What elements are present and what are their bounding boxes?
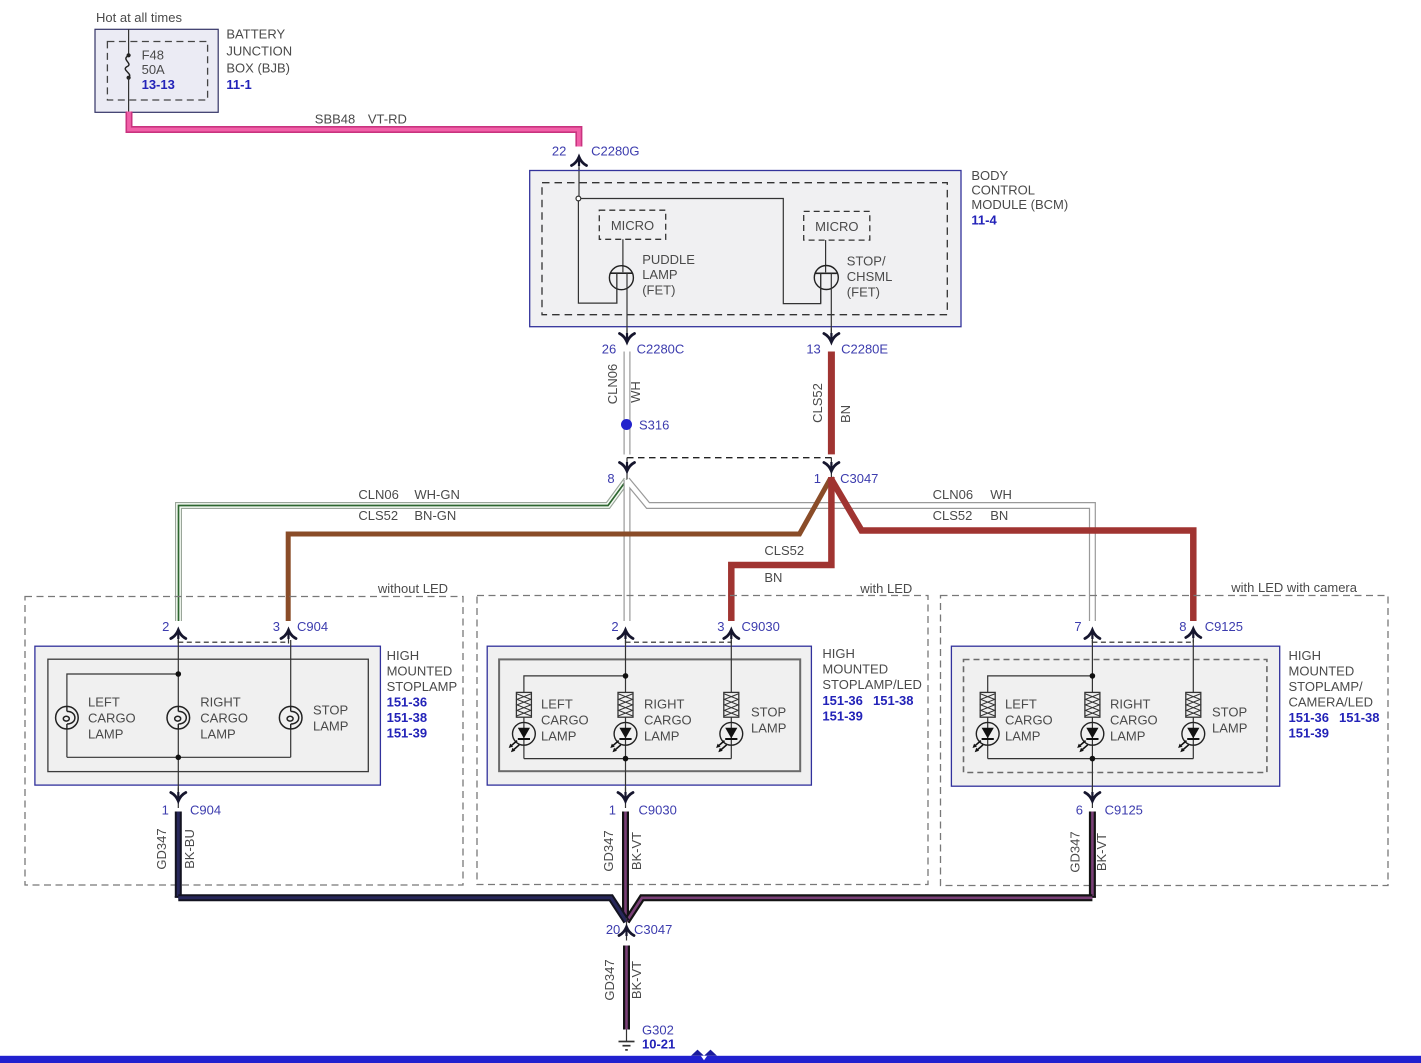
svg-text:BN-GN: BN-GN — [414, 508, 456, 523]
svg-text:BN: BN — [838, 405, 853, 423]
svg-text:2: 2 — [611, 619, 618, 634]
svg-text:151-38: 151-38 — [1339, 710, 1379, 725]
svg-text:GD347: GD347 — [601, 830, 616, 871]
svg-text:LEFT: LEFT — [541, 697, 573, 712]
svg-text:STOP: STOP — [313, 703, 348, 718]
svg-text:3: 3 — [717, 619, 724, 634]
svg-text:STOPLAMP/LED: STOPLAMP/LED — [822, 677, 921, 692]
svg-text:BK-VT: BK-VT — [629, 961, 644, 999]
svg-text:S316: S316 — [639, 418, 669, 433]
svg-text:8: 8 — [1179, 619, 1186, 634]
svg-text:with LED with camera: with LED with camera — [1230, 580, 1357, 595]
svg-text:LAMP: LAMP — [1212, 721, 1247, 736]
svg-text:C3047: C3047 — [634, 922, 672, 937]
svg-text:LEFT: LEFT — [88, 695, 120, 710]
svg-text:13: 13 — [806, 342, 820, 357]
svg-text:C9125: C9125 — [1105, 803, 1143, 818]
svg-text:MOUNTED: MOUNTED — [1289, 664, 1355, 679]
svg-text:151-39: 151-39 — [822, 709, 862, 724]
svg-text:BK-BU: BK-BU — [182, 829, 197, 869]
svg-text:GD347: GD347 — [154, 828, 169, 869]
svg-text:11-1: 11-1 — [226, 77, 251, 92]
svg-text:STOP: STOP — [1212, 705, 1247, 720]
svg-text:C9125: C9125 — [1205, 619, 1243, 634]
svg-text:CARGO: CARGO — [1005, 713, 1053, 728]
svg-text:LEFT: LEFT — [1005, 697, 1037, 712]
svg-text:LAMP: LAMP — [644, 729, 679, 744]
svg-text:Hot at all times: Hot at all times — [96, 10, 182, 25]
svg-text:CONTROL: CONTROL — [971, 183, 1035, 198]
svg-text:without LED: without LED — [377, 581, 448, 596]
svg-text:STOP/: STOP/ — [847, 254, 886, 269]
svg-text:LAMP: LAMP — [313, 719, 348, 734]
svg-text:BK-VT: BK-VT — [1094, 833, 1109, 871]
svg-text:PUDDLE: PUDDLE — [642, 252, 695, 267]
svg-text:CARGO: CARGO — [541, 713, 589, 728]
svg-text:11-4: 11-4 — [971, 213, 997, 228]
svg-text:C9030: C9030 — [742, 619, 780, 634]
svg-text:MOUNTED: MOUNTED — [822, 662, 888, 677]
svg-text:RIGHT: RIGHT — [644, 697, 685, 712]
svg-text:GD347: GD347 — [602, 959, 617, 1000]
svg-text:CHSML: CHSML — [847, 269, 893, 284]
svg-text:CLN06: CLN06 — [933, 487, 973, 502]
svg-text:LAMP: LAMP — [200, 727, 235, 742]
svg-text:1: 1 — [162, 803, 169, 818]
svg-text:151-36: 151-36 — [1289, 710, 1329, 725]
svg-text:13-13: 13-13 — [142, 77, 175, 92]
svg-text:HIGH: HIGH — [387, 648, 420, 663]
svg-text:JUNCTION: JUNCTION — [226, 44, 292, 59]
svg-text:CLN06: CLN06 — [358, 487, 398, 502]
svg-text:G302: G302 — [642, 1023, 674, 1038]
svg-text:22: 22 — [552, 144, 566, 159]
svg-text:BN: BN — [990, 508, 1008, 523]
svg-text:CLS52: CLS52 — [358, 508, 398, 523]
svg-text:WH: WH — [990, 487, 1012, 502]
svg-text:CARGO: CARGO — [200, 711, 248, 726]
svg-text:1: 1 — [814, 471, 821, 486]
svg-text:LAMP: LAMP — [88, 727, 123, 742]
svg-text:C2280E: C2280E — [841, 342, 888, 357]
svg-text:STOP: STOP — [751, 705, 786, 720]
svg-text:151-38: 151-38 — [387, 710, 427, 725]
svg-text:BOX (BJB): BOX (BJB) — [226, 61, 290, 76]
svg-text:151-39: 151-39 — [387, 726, 427, 741]
svg-text:GD347: GD347 — [1068, 831, 1083, 872]
svg-text:BK-VT: BK-VT — [629, 832, 644, 870]
svg-text:CAMERA/LED: CAMERA/LED — [1289, 695, 1374, 710]
svg-text:(FET): (FET) — [847, 285, 880, 300]
svg-text:1: 1 — [609, 803, 616, 818]
svg-text:LAMP: LAMP — [642, 267, 677, 282]
svg-text:C3047: C3047 — [840, 471, 878, 486]
svg-text:MOUNTED: MOUNTED — [387, 664, 453, 679]
svg-text:CARGO: CARGO — [644, 713, 692, 728]
svg-text:HIGH: HIGH — [822, 646, 855, 661]
svg-text:LAMP: LAMP — [1005, 729, 1040, 744]
svg-text:CLS52: CLS52 — [810, 383, 825, 423]
svg-text:WH: WH — [628, 381, 643, 403]
svg-text:C2280C: C2280C — [637, 342, 685, 357]
svg-text:LAMP: LAMP — [751, 721, 786, 736]
svg-text:STOPLAMP/: STOPLAMP/ — [1289, 679, 1364, 694]
svg-text:CLS52: CLS52 — [764, 543, 804, 558]
svg-text:BN: BN — [764, 570, 782, 585]
svg-text:MODULE (BCM): MODULE (BCM) — [971, 197, 1068, 212]
svg-text:CARGO: CARGO — [1110, 713, 1158, 728]
svg-text:C9030: C9030 — [639, 803, 677, 818]
svg-text:2: 2 — [162, 619, 169, 634]
svg-text:WH-GN: WH-GN — [414, 487, 460, 502]
svg-text:LAMP: LAMP — [541, 729, 576, 744]
svg-text:BATTERY: BATTERY — [226, 27, 285, 42]
svg-text:STOPLAMP: STOPLAMP — [387, 679, 458, 694]
svg-text:151-36: 151-36 — [822, 693, 862, 708]
svg-text:CLN06: CLN06 — [605, 364, 620, 404]
svg-text:CLS52: CLS52 — [933, 508, 973, 523]
svg-text:3: 3 — [273, 619, 280, 634]
svg-text:MICRO: MICRO — [611, 218, 654, 233]
svg-text:151-38: 151-38 — [873, 693, 913, 708]
svg-text:10-21: 10-21 — [642, 1037, 675, 1052]
svg-text:with LED: with LED — [859, 581, 912, 596]
svg-text:151-36: 151-36 — [387, 695, 427, 710]
svg-text:RIGHT: RIGHT — [1110, 697, 1151, 712]
svg-text:C2280G: C2280G — [591, 144, 639, 159]
svg-text:26: 26 — [602, 342, 616, 357]
svg-text:VT-RD: VT-RD — [368, 112, 407, 127]
svg-text:MICRO: MICRO — [815, 219, 858, 234]
svg-text:(FET): (FET) — [642, 283, 675, 298]
svg-text:6: 6 — [1076, 803, 1083, 818]
svg-text:C904: C904 — [190, 803, 221, 818]
svg-text:LAMP: LAMP — [1110, 729, 1145, 744]
svg-text:SBB48: SBB48 — [315, 112, 355, 127]
svg-text:7: 7 — [1074, 619, 1081, 634]
svg-text:151-39: 151-39 — [1289, 726, 1329, 741]
svg-text:BODY: BODY — [971, 168, 1008, 183]
svg-text:20: 20 — [606, 922, 620, 937]
svg-text:C904: C904 — [297, 619, 328, 634]
svg-text:50A: 50A — [142, 62, 165, 77]
svg-text:F48: F48 — [142, 48, 164, 63]
svg-text:RIGHT: RIGHT — [200, 695, 241, 710]
svg-text:CARGO: CARGO — [88, 711, 136, 726]
svg-text:HIGH: HIGH — [1289, 648, 1322, 663]
svg-text:8: 8 — [607, 471, 614, 486]
